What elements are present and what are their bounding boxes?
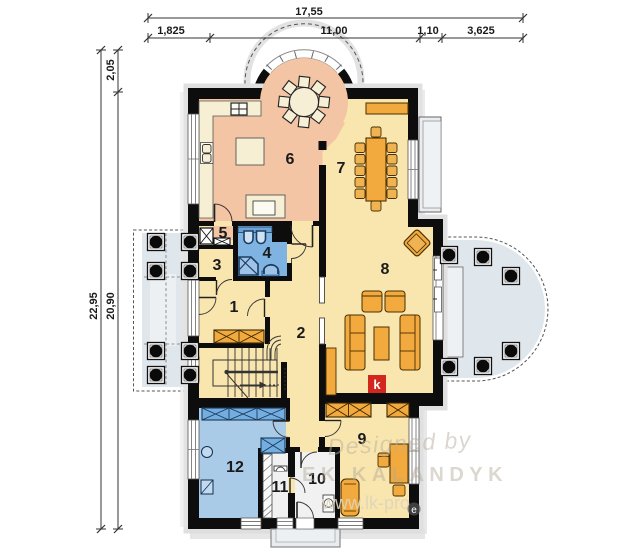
- svg-text:11,00: 11,00: [321, 25, 348, 37]
- svg-text:12: 12: [226, 459, 244, 476]
- svg-text:20,90: 20,90: [105, 292, 117, 320]
- svg-text:2,05: 2,05: [105, 59, 117, 80]
- svg-text:3,625: 3,625: [467, 25, 495, 37]
- svg-text:6: 6: [286, 151, 295, 168]
- svg-text:k: k: [373, 377, 381, 392]
- svg-text:11: 11: [272, 479, 289, 496]
- svg-text:4: 4: [263, 245, 272, 262]
- svg-text:5: 5: [219, 225, 228, 242]
- svg-text:www.lk-pro: www.lk-pro: [321, 493, 410, 513]
- svg-text:8: 8: [381, 261, 390, 278]
- svg-text:1,825: 1,825: [157, 25, 185, 37]
- svg-text:2: 2: [297, 325, 306, 342]
- svg-text:1,10: 1,10: [417, 25, 438, 37]
- svg-text:17,55: 17,55: [295, 6, 323, 18]
- svg-text:1: 1: [230, 299, 239, 316]
- svg-text:7: 7: [337, 160, 346, 177]
- svg-text:22,95: 22,95: [88, 292, 100, 320]
- svg-text:EK KALANDYK: EK KALANDYK: [302, 464, 508, 486]
- svg-text:3: 3: [213, 257, 222, 274]
- svg-text:e: e: [411, 505, 417, 516]
